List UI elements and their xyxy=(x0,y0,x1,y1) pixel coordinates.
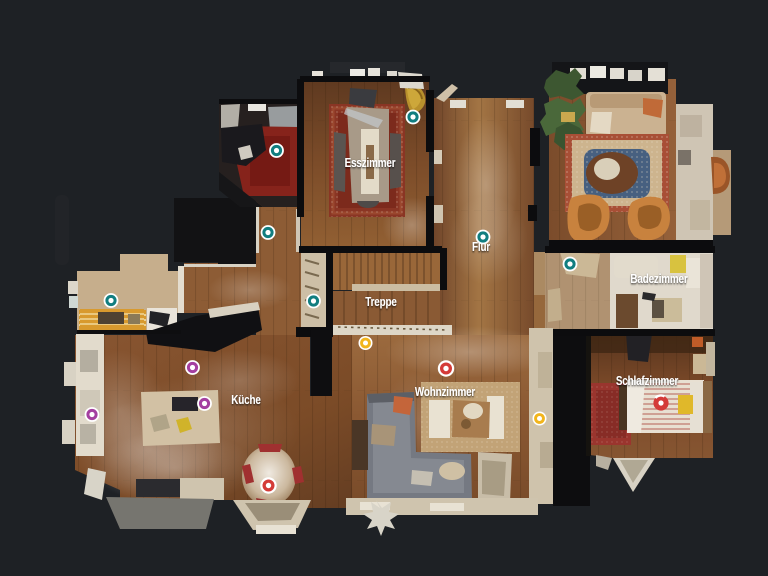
svg-text:Esszimmer: Esszimmer xyxy=(345,157,396,171)
svg-text:Badezimmer: Badezimmer xyxy=(630,273,688,287)
svg-text:Treppe: Treppe xyxy=(365,296,397,310)
svg-text:Wohnzimmer: Wohnzimmer xyxy=(415,386,476,400)
svg-text:Küche: Küche xyxy=(231,394,261,408)
svg-text:Schlafzimmer: Schlafzimmer xyxy=(616,375,679,389)
